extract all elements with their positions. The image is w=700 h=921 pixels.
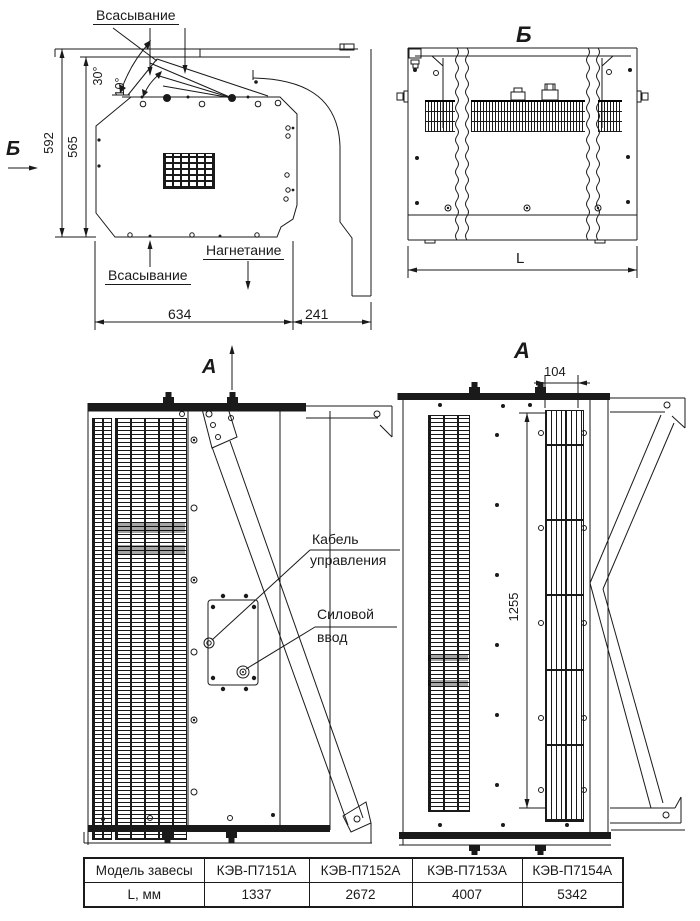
suction-bottom-label: Всасывание xyxy=(105,267,191,285)
discharge-label: Нагнетание xyxy=(203,242,284,260)
suction-top-label: Всасывание xyxy=(93,7,179,25)
suction-bottom-arrow xyxy=(148,240,153,267)
table-row-lengths: L, мм 1337 2672 4007 5342 xyxy=(84,883,623,908)
ceiling-plate xyxy=(55,44,358,57)
view-a-grille-band xyxy=(428,680,468,686)
table-header-length: L, мм xyxy=(84,883,204,908)
model-cell: КЭВ-П7153А xyxy=(412,858,522,883)
discharge-arrow xyxy=(246,261,251,290)
front-grille-wide xyxy=(115,418,187,840)
view-b-body xyxy=(408,48,637,243)
view-arrow-a xyxy=(230,345,235,390)
length-cell: 1337 xyxy=(204,883,309,908)
angle-10-label: 10° xyxy=(113,72,127,102)
front-panel-screws xyxy=(191,437,197,795)
view-a-bottom-arm xyxy=(610,797,685,830)
heat-exchanger-fins-center xyxy=(471,100,585,132)
dim-241-label: 241 xyxy=(305,306,328,322)
view-marker-a: А xyxy=(202,356,216,379)
model-cell: КЭВ-П7154А xyxy=(522,858,623,883)
power-input-label-line2: ввод xyxy=(317,629,347,645)
model-spec-table: Модель завесы КЭВ-П7151А КЭВ-П7152А КЭВ-… xyxy=(83,857,624,908)
louver-center-rib xyxy=(565,411,567,821)
dim-1255-label: 1255 xyxy=(506,587,522,627)
view-a-grille xyxy=(428,415,470,812)
section-arrow-b xyxy=(8,166,38,171)
dim-L-label: L xyxy=(516,250,524,267)
length-cell: 4007 xyxy=(412,883,522,908)
cable-glands-top xyxy=(511,84,558,100)
front-grille-band xyxy=(115,523,185,533)
control-cable-label-line1: Кабель xyxy=(312,531,359,547)
dimension-592 xyxy=(60,49,65,237)
suction-top-leaders xyxy=(113,28,188,76)
view-a-brace xyxy=(590,415,674,808)
model-cell: КЭВ-П7151А xyxy=(204,858,309,883)
side-view-drawing xyxy=(0,0,400,395)
section-marker-b: Б xyxy=(6,138,20,161)
support-brace xyxy=(201,405,371,843)
junction-box xyxy=(208,594,258,691)
dimension-1255 xyxy=(519,413,545,808)
angle-30-label: 30° xyxy=(91,61,105,91)
length-cell: 5342 xyxy=(522,883,623,908)
power-input-label-line1: Силовой xyxy=(317,606,374,622)
front-grille-band xyxy=(115,545,185,555)
model-cell: КЭВ-П7152А xyxy=(309,858,412,883)
dim-634-label: 634 xyxy=(168,306,191,322)
view-a-grille-band xyxy=(428,655,468,661)
table-header-model: Модель завесы xyxy=(84,858,204,883)
control-cable-label-line2: управления xyxy=(310,552,386,568)
side-inlet-grille xyxy=(163,153,215,189)
heat-exchanger-fins-right xyxy=(598,100,622,132)
length-cell: 2672 xyxy=(309,883,412,908)
dim-565-label: 565 xyxy=(65,127,81,167)
view-b-title: Б xyxy=(516,22,532,48)
dim-104-label: 104 xyxy=(544,364,566,379)
discharge-louver xyxy=(545,410,584,822)
view-b-drawing xyxy=(395,0,700,300)
technical-drawing-page: Всасывание 592 565 30° 10° Б Нагнетание … xyxy=(0,0,700,921)
heat-exchanger-fins-left xyxy=(425,100,455,132)
view-a-title: А xyxy=(514,338,530,364)
dim-592-label: 592 xyxy=(41,123,57,163)
front-grille-narrow xyxy=(92,418,112,840)
table-row-models: Модель завесы КЭВ-П7151А КЭВ-П7152А КЭВ-… xyxy=(84,858,623,883)
